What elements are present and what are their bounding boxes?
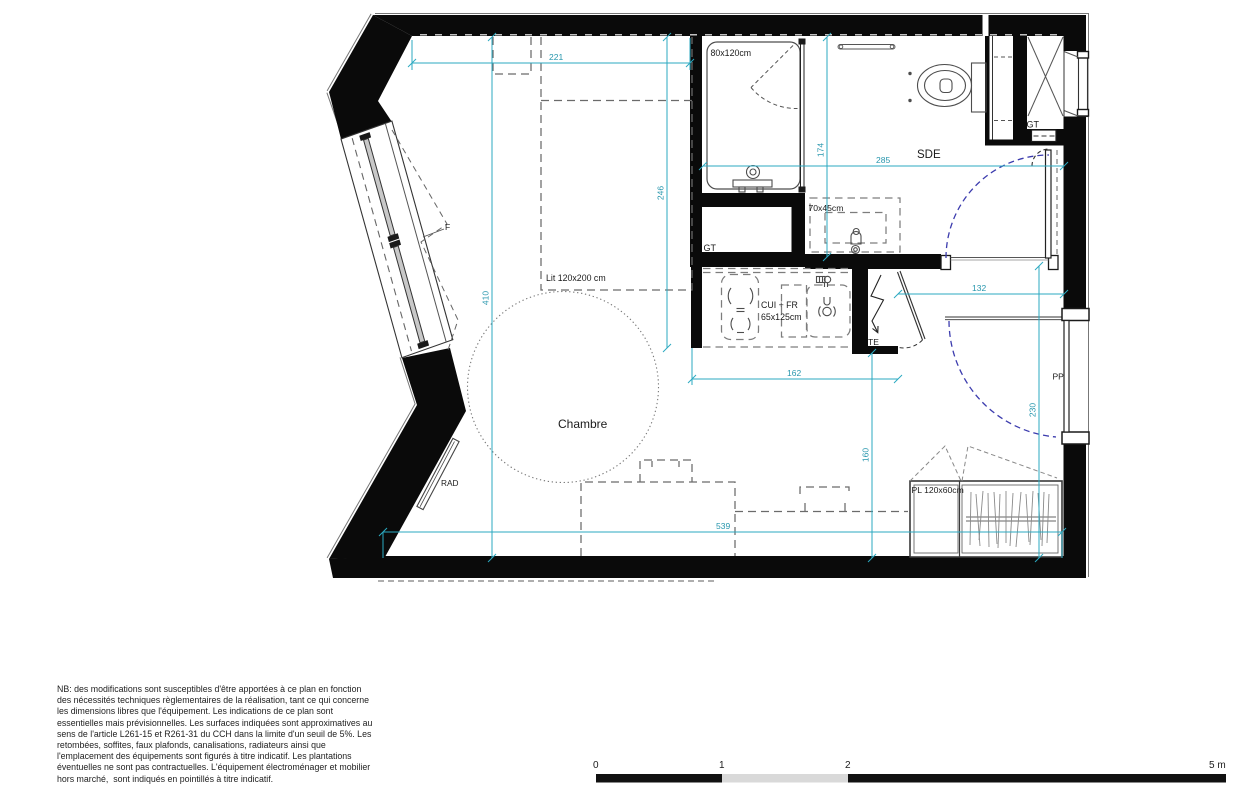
svg-text:GT: GT: [1027, 120, 1040, 130]
svg-text:65x125cm: 65x125cm: [761, 312, 802, 322]
svg-text:70x45cm: 70x45cm: [809, 203, 844, 213]
svg-text:285: 285: [876, 155, 890, 165]
svg-text:174: 174: [816, 143, 826, 157]
svg-text:132: 132: [972, 283, 986, 293]
svg-text:SDE: SDE: [917, 149, 941, 161]
svg-text:RAD: RAD: [441, 478, 459, 488]
svg-text:PL 120x60cm: PL 120x60cm: [912, 485, 964, 495]
svg-text:Lit 120x200 cm: Lit 120x200 cm: [546, 273, 606, 283]
svg-text:160: 160: [861, 448, 871, 462]
svg-text:221: 221: [549, 52, 563, 62]
svg-text:GT: GT: [704, 243, 717, 253]
svg-text:246: 246: [656, 186, 666, 200]
svg-text:410: 410: [481, 291, 491, 305]
svg-text:1: 1: [719, 760, 725, 771]
svg-text:TE: TE: [868, 337, 879, 347]
svg-text:230: 230: [1028, 403, 1038, 417]
svg-text:2: 2: [845, 760, 851, 771]
svg-text:PP: PP: [1053, 372, 1065, 382]
svg-text:162: 162: [787, 368, 801, 378]
svg-text:0: 0: [593, 760, 599, 771]
svg-text:80x120cm: 80x120cm: [711, 48, 752, 58]
svg-text:CUI + FR: CUI + FR: [761, 300, 798, 310]
svg-text:Chambre: Chambre: [558, 417, 608, 431]
svg-text:F: F: [445, 222, 450, 232]
svg-text:5 m: 5 m: [1209, 760, 1226, 771]
svg-text:539: 539: [716, 521, 730, 531]
